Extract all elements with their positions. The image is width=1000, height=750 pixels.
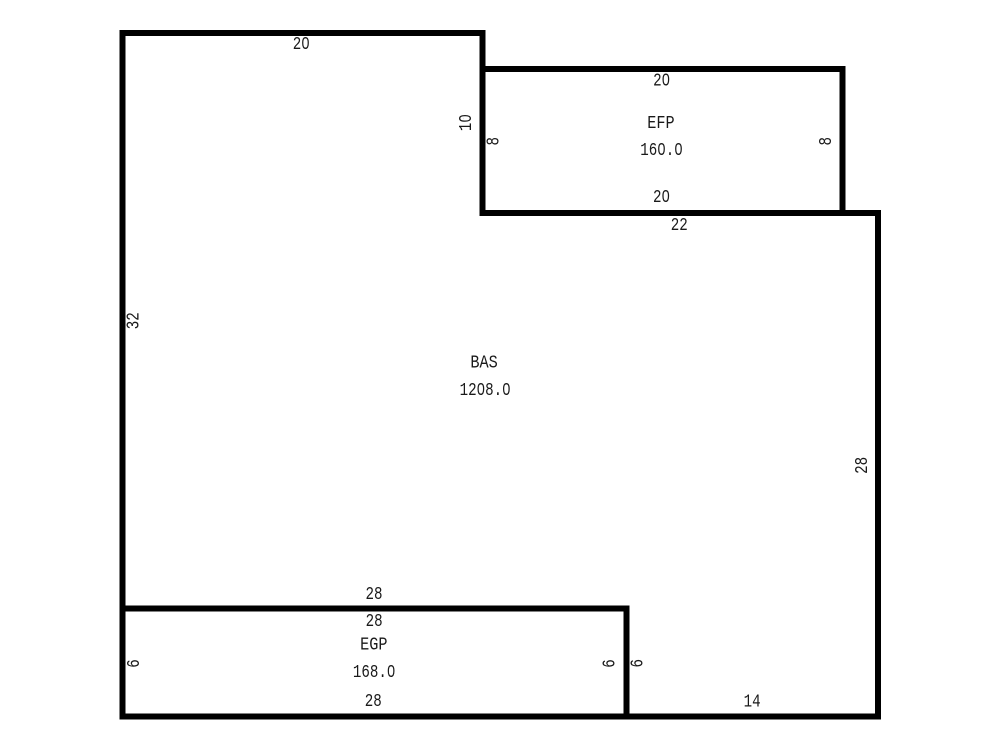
svg-text:EGP: EGP <box>360 635 387 655</box>
svg-text:20: 20 <box>293 35 310 55</box>
svg-text:32: 32 <box>125 312 145 329</box>
svg-text:22: 22 <box>671 216 688 236</box>
svg-text:14: 14 <box>744 693 761 713</box>
svg-text:28: 28 <box>365 692 382 712</box>
svg-text:8: 8 <box>817 137 837 146</box>
svg-text:28: 28 <box>366 612 383 632</box>
svg-text:6: 6 <box>601 659 621 668</box>
svg-text:28: 28 <box>366 585 383 605</box>
svg-text:6: 6 <box>125 659 145 668</box>
svg-text:20: 20 <box>653 188 670 208</box>
svg-text:168.0: 168.0 <box>353 663 396 683</box>
svg-text:EFP: EFP <box>647 114 674 134</box>
svg-text:6: 6 <box>629 659 649 668</box>
svg-text:28: 28 <box>853 457 873 474</box>
svg-text:10: 10 <box>457 114 477 131</box>
svg-text:BAS: BAS <box>470 354 497 374</box>
svg-text:1208.0: 1208.0 <box>460 381 511 401</box>
svg-text:8: 8 <box>485 137 505 146</box>
svg-text:20: 20 <box>653 71 670 91</box>
